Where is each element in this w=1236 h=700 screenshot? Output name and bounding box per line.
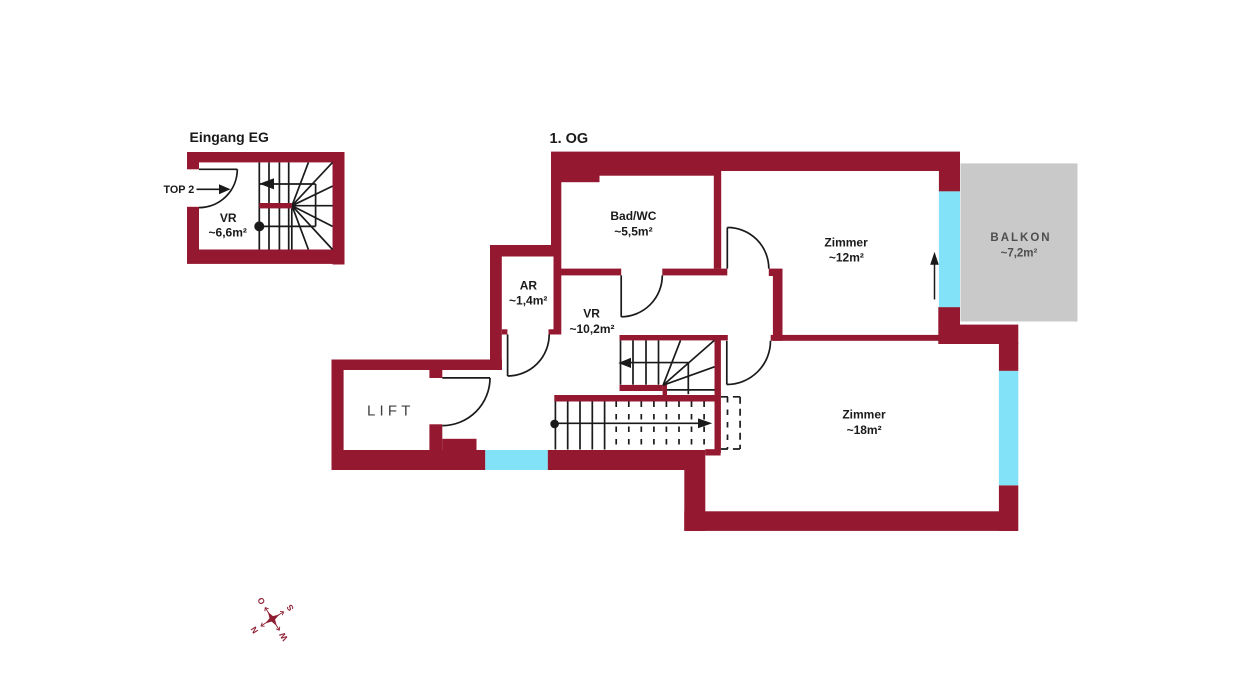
svg-text:~5,5m²: ~5,5m² [614, 225, 652, 239]
svg-text:Bad/WC: Bad/WC [610, 209, 656, 223]
svg-text:VR: VR [220, 211, 237, 225]
svg-text:~6,6m²: ~6,6m² [209, 226, 247, 240]
svg-text:BALKON: BALKON [990, 232, 1051, 244]
svg-text:Eingang EG: Eingang EG [190, 129, 269, 145]
svg-text:LIFT: LIFT [367, 402, 415, 419]
svg-text:~1,4m²: ~1,4m² [509, 294, 547, 308]
svg-text:1. OG: 1. OG [550, 131, 589, 147]
svg-text:Zimmer: Zimmer [824, 235, 868, 249]
svg-text:~18m²: ~18m² [847, 423, 882, 437]
svg-text:TOP 2: TOP 2 [164, 184, 195, 196]
svg-text:AR: AR [520, 278, 538, 292]
svg-text:~12m²: ~12m² [829, 251, 864, 265]
svg-text:~10,2m²: ~10,2m² [569, 322, 614, 336]
svg-text:~7,2m²: ~7,2m² [1001, 247, 1038, 259]
svg-text:Zimmer: Zimmer [842, 407, 886, 421]
svg-text:VR: VR [583, 307, 600, 321]
